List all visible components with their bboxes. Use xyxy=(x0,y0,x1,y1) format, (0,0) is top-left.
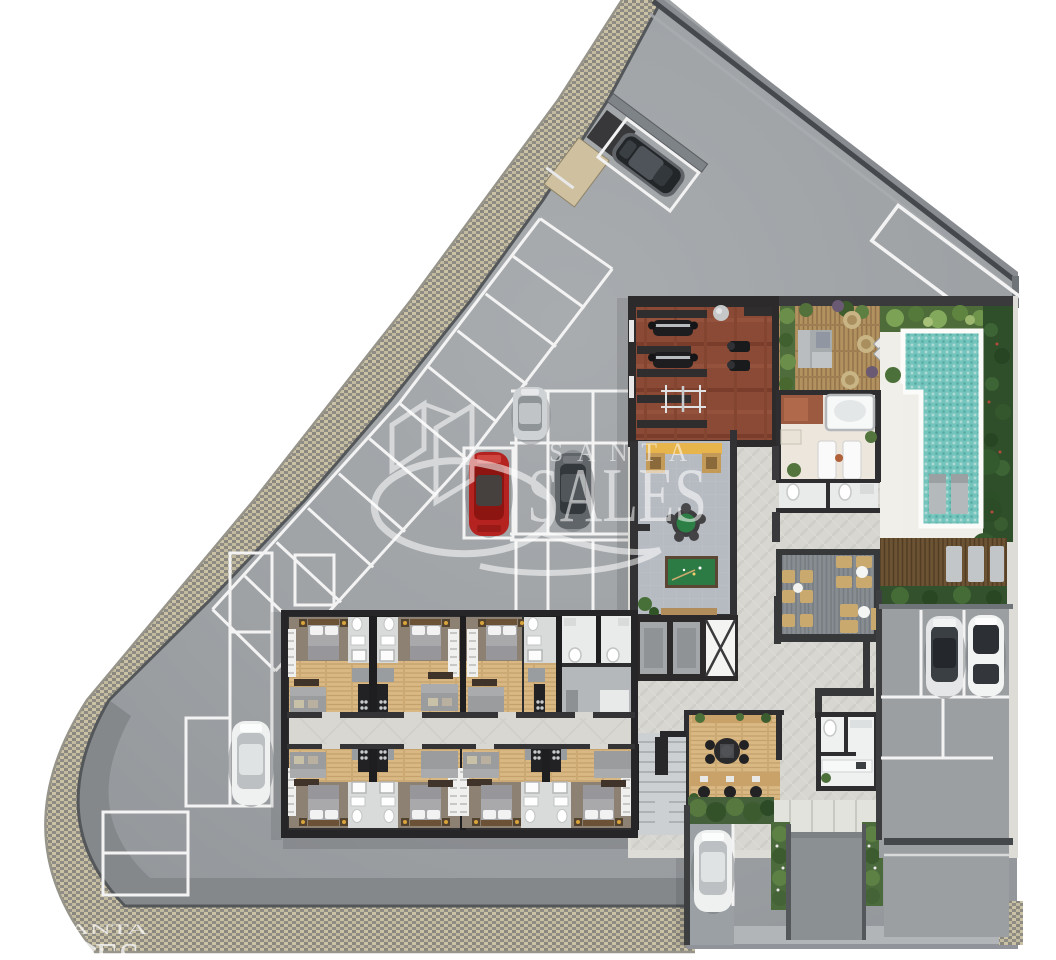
svg-text:SALES: SALES xyxy=(527,452,707,538)
